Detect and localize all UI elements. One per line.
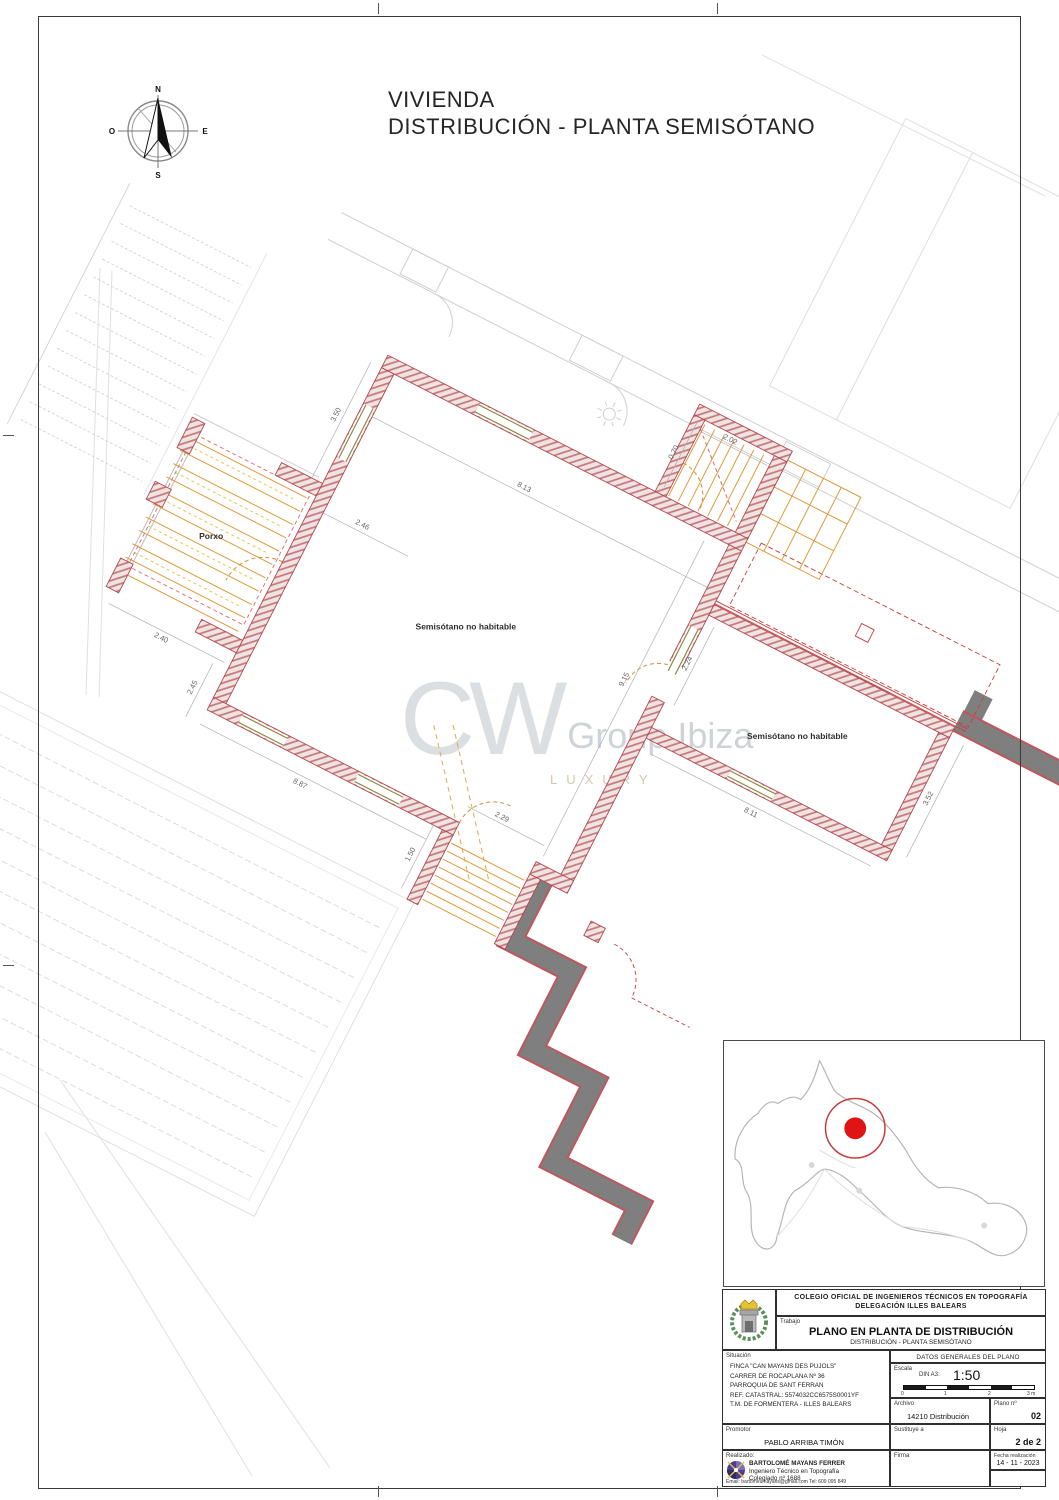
promotor-cell: Promotor PABLO ARRIBA TIMÓN xyxy=(722,1424,890,1450)
road-junction xyxy=(981,1223,987,1229)
scale-tick: 0 xyxy=(901,1391,904,1397)
sustituye-cell: Sustituye a xyxy=(890,1424,990,1450)
compass-east: E xyxy=(202,127,208,136)
plan-title: PLANO EN PLANTA DE DISTRIBUCIÓN xyxy=(777,1326,1045,1338)
dim-porch-bottom: 2.40 xyxy=(153,630,170,645)
formato-label: DIN A3: xyxy=(919,1372,940,1378)
situacion-label: Situación xyxy=(726,1353,751,1359)
room-label-porch: Porxo xyxy=(199,531,223,541)
realizado-cell: Realizado: BARTOLOMÉ MAYANS FERRER Ingen… xyxy=(722,1450,890,1487)
datos-header-cell: DATOS GENERALES DEL PLANO xyxy=(890,1350,1046,1363)
dimension-labels: 8.13 9.15 2.46 3.50 2.40 2.45 8.87 1.50 … xyxy=(115,243,1039,1061)
college-crest-cell xyxy=(722,1289,776,1350)
compass-rose: N S E O xyxy=(109,85,208,180)
org-line1: COLEGIO OFICIAL DE INGENIEROS TÉCNICOS E… xyxy=(777,1294,1045,1301)
sun-symbol xyxy=(592,397,627,432)
promotor-label: Promotor xyxy=(726,1427,751,1433)
compass-north: N xyxy=(155,85,161,94)
realizado-name: BARTOLOMÉ MAYANS FERRER xyxy=(749,1460,845,1468)
road-junction xyxy=(856,1188,862,1194)
datos-header: DATOS GENERALES DEL PLANO xyxy=(891,1354,1045,1361)
realizado-title: Ingeniero Técnico en Topografía xyxy=(749,1468,845,1476)
scale-bar xyxy=(903,1385,1035,1390)
escala-label: Escala xyxy=(894,1366,912,1372)
plano-num-cell: Plano nº 02 xyxy=(990,1398,1046,1424)
fold-mark xyxy=(3,435,14,436)
upper-terrace-block xyxy=(770,118,1059,508)
page-title-line1: VIVIENDA xyxy=(388,86,815,113)
plan-subtitle: DISTRIBUCIÓN - PLANTA SEMISÓTANO xyxy=(777,1339,1045,1346)
hoja-cell: Hoja 2 de 2 xyxy=(990,1424,1046,1450)
dim-right-wall: 9.15 xyxy=(617,671,632,688)
firma-label: Firma xyxy=(894,1453,909,1459)
fold-mark xyxy=(717,1486,718,1497)
realizado-contact: Email: bartomeumayans@gmail.com Tel: 609… xyxy=(726,1479,846,1485)
scale-tick: 3 m xyxy=(1027,1391,1035,1397)
situacion-line: CARRER DE ROCAPLANA Nº 36 xyxy=(730,1372,859,1382)
location-map xyxy=(723,1040,1045,1287)
situacion-line: REF. CATASTRAL: 5574032CC6575S0001YF xyxy=(730,1391,859,1401)
room-label-right: Semisótano no habitable xyxy=(747,731,848,741)
situacion-line: T.M. DE FORMENTERA - ILLES BALEARS xyxy=(730,1400,859,1410)
archivo-cell: Archivo 14210 Distribución xyxy=(890,1398,990,1424)
college-crest xyxy=(723,1290,775,1349)
fold-mark xyxy=(717,3,718,14)
surveyor-logo xyxy=(726,1460,746,1480)
empty-cell xyxy=(990,1470,1046,1487)
page-title: VIVIENDA DISTRIBUCIÓN - PLANTA SEMISÓTAN… xyxy=(388,86,815,140)
fecha-cell: Fecha realización 14 - 11 - 2023 xyxy=(990,1450,1046,1470)
dim-stair-width: 2.29 xyxy=(493,809,510,824)
room-label-main: Semisótano no habitable xyxy=(416,621,517,631)
plano-label: Plano nº xyxy=(994,1401,1017,1407)
escala-value: 1:50 xyxy=(953,1367,980,1383)
plano-value: 02 xyxy=(991,1411,1041,1421)
realizado-label: Realizado: xyxy=(726,1453,754,1459)
scale-tick: 1 xyxy=(944,1391,947,1397)
hoja-value: 2 de 2 xyxy=(991,1437,1041,1447)
fold-mark xyxy=(378,3,379,14)
trabajo-label: Trabajo xyxy=(780,1319,800,1325)
plan-sheet: { "sheet": { "title_line1": "VIVIENDA", … xyxy=(0,0,1059,1500)
location-marker xyxy=(844,1117,866,1139)
archivo-value: 14210 Distribución xyxy=(891,1412,985,1421)
fecha-label: Fecha realización xyxy=(994,1453,1036,1459)
org-cell: COLEGIO OFICIAL DE INGENIEROS TÉCNICOS E… xyxy=(776,1289,1046,1316)
archivo-label: Archivo xyxy=(894,1401,914,1407)
fold-mark xyxy=(378,1486,379,1497)
escala-cell: Escala DIN A3: 1:50 0 1 2 3 m xyxy=(890,1363,1046,1398)
sustituye-label: Sustituye a xyxy=(894,1427,924,1433)
dim-right-room-w: 8.11 xyxy=(743,805,760,819)
compass-south: S xyxy=(155,171,161,180)
lower-deck-lines xyxy=(0,677,414,1217)
door-arcs xyxy=(176,302,759,877)
situacion-cell: Situación FINCA "CAN MAYANS DES PUJOLS" … xyxy=(722,1350,890,1424)
page-title-line2: DISTRIBUCIÓN - PLANTA SEMISÓTANO xyxy=(388,113,815,140)
hoja-label: Hoja xyxy=(994,1427,1006,1433)
terrace-lines xyxy=(7,183,267,493)
compass-west: O xyxy=(109,127,115,136)
situacion-line: PARROQUIA DE SANT FERRAN xyxy=(730,1381,859,1391)
situacion-line: FINCA "CAN MAYANS DES PUJOLS" xyxy=(730,1362,859,1372)
promotor-value: PABLO ARRIBA TIMÓN xyxy=(723,1438,885,1447)
title-block: COLEGIO OFICIAL DE INGENIEROS TÉCNICOS E… xyxy=(722,1289,1046,1487)
road-junction xyxy=(809,1162,815,1168)
fold-mark xyxy=(3,965,14,966)
firma-cell: Firma xyxy=(890,1450,990,1487)
trabajo-cell: Trabajo PLANO EN PLANTA DE DISTRIBUCIÓN … xyxy=(776,1316,1046,1350)
fecha-value: 14 - 11 - 2023 xyxy=(991,1460,1045,1467)
org-line2: DELEGACIÓN ILLES BALEARS xyxy=(777,1303,1045,1310)
dim-top: 8.13 xyxy=(516,480,533,495)
scale-tick: 2 xyxy=(988,1391,991,1397)
